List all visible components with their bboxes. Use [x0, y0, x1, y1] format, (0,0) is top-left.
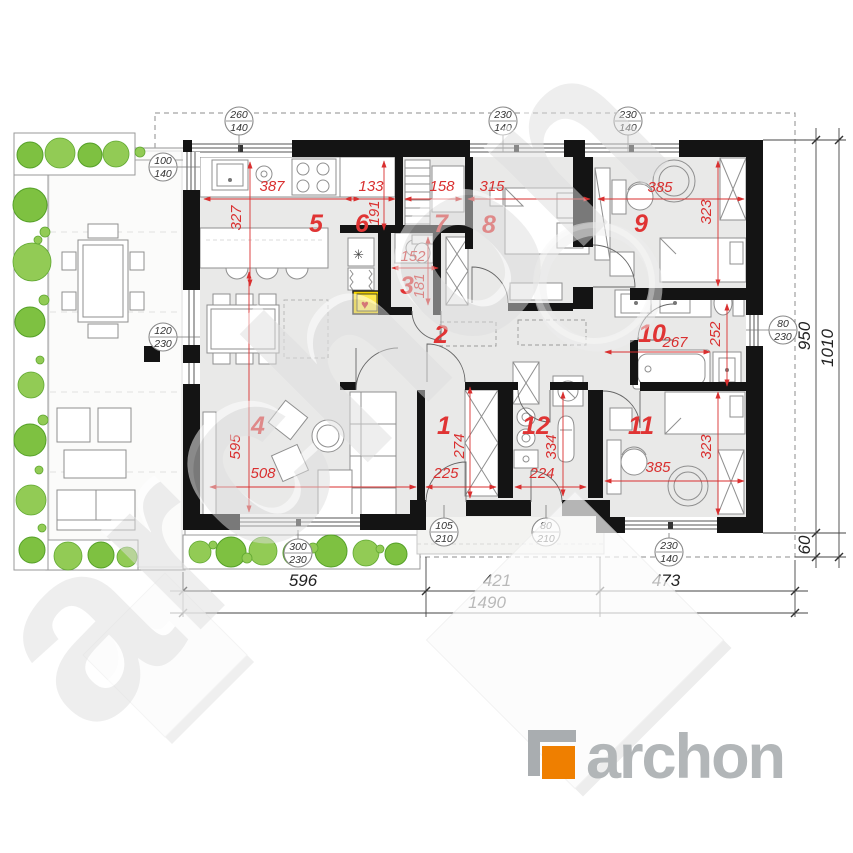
- svg-text:140: 140: [494, 122, 512, 134]
- dim-right-1010: 1010: [818, 329, 837, 367]
- dim-323-room9: 323: [698, 199, 715, 225]
- spec-circle-300-230: 300230: [284, 539, 312, 567]
- dim-right-60: 60: [795, 535, 814, 554]
- dim-bottom-473: 473: [652, 571, 681, 590]
- boiler: ♥: [353, 291, 381, 314]
- room-label-3: 3: [400, 272, 414, 300]
- dim-385-room9: 385: [647, 179, 673, 196]
- dim-133: 133: [358, 178, 384, 195]
- svg-text:230: 230: [773, 331, 792, 343]
- dim-327: 327: [228, 205, 245, 231]
- dim-bottom-596: 596: [289, 571, 318, 590]
- boiler-heart-icon: ♥: [361, 297, 369, 312]
- spec-circle-230-140-a: 230140: [489, 107, 517, 135]
- room-label-9: 9: [634, 210, 648, 238]
- room-label-1: 1: [437, 412, 451, 440]
- dim-387: 387: [259, 178, 285, 195]
- svg-text:210: 210: [434, 533, 453, 545]
- room-label-6: 6: [355, 210, 370, 238]
- room-label-2: 2: [433, 321, 448, 349]
- dim-225: 225: [432, 465, 459, 482]
- svg-text:140: 140: [230, 122, 248, 134]
- room-label-4: 4: [250, 412, 265, 440]
- dim-323-room11: 323: [698, 434, 715, 460]
- dim-152: 152: [400, 248, 426, 265]
- svg-text:140: 140: [154, 168, 172, 180]
- dim-274: 274: [451, 433, 468, 459]
- spec-circle-105-210: 105210: [430, 518, 458, 546]
- window-top-1: [192, 140, 292, 157]
- svg-text:230: 230: [288, 554, 307, 566]
- svg-text:230: 230: [493, 109, 512, 121]
- svg-text:120: 120: [154, 325, 172, 337]
- window-left: [183, 152, 200, 190]
- dim-595: 595: [227, 434, 244, 460]
- svg-text:210: 210: [536, 533, 555, 545]
- vent-symbol: ✳: [353, 247, 364, 262]
- spec-circle-230-140-b: 230140: [614, 107, 642, 135]
- window-top-2: [470, 140, 564, 157]
- svg-text:300: 300: [289, 541, 307, 553]
- spec-circle-260-140: 260140: [225, 107, 253, 135]
- floor-plan-page: **: [0, 0, 853, 853]
- dim-252: 252: [707, 321, 724, 348]
- svg-text:230: 230: [618, 109, 637, 121]
- floor-plan-svg: **: [0, 0, 853, 853]
- room-label-12: 12: [522, 412, 550, 440]
- logo-wordmark: archon: [586, 722, 784, 792]
- terrace-glass-door-2: [183, 363, 200, 384]
- svg-text:80: 80: [777, 318, 789, 330]
- dim-bottom-1490: 1490: [468, 593, 506, 612]
- dim-385-room11: 385: [645, 459, 671, 476]
- room-label-10: 10: [638, 320, 666, 348]
- svg-text:140: 140: [619, 122, 637, 134]
- spec-circle-80-230: 80230: [769, 316, 797, 344]
- spec-circle-230-140-c: 230140: [655, 538, 683, 566]
- spec-circle-100-140: 100140: [149, 153, 177, 181]
- window-right: [746, 315, 763, 346]
- svg-text:105: 105: [435, 520, 453, 532]
- window-top-3: [585, 140, 679, 157]
- room-label-11: 11: [628, 412, 654, 440]
- dim-bottom-421: 421: [483, 571, 511, 590]
- room-label-7: 7: [434, 210, 449, 238]
- svg-text:140: 140: [660, 553, 678, 565]
- room-label-8: 8: [482, 211, 496, 239]
- window-bottom-left: [240, 514, 360, 530]
- svg-text:80: 80: [540, 520, 552, 532]
- svg-text:230: 230: [153, 338, 172, 350]
- dim-158: 158: [429, 178, 455, 195]
- svg-text:260: 260: [229, 109, 248, 121]
- window-bottom-right: [625, 517, 717, 533]
- svg-text:230: 230: [659, 540, 678, 552]
- spec-circle-120-230: 120230: [149, 323, 177, 351]
- dim-315: 315: [479, 178, 505, 195]
- dim-508: 508: [250, 465, 276, 482]
- logo-bracket-vertical: [528, 730, 540, 776]
- archon-logo: archon: [528, 722, 784, 792]
- dim-right-950: 950: [795, 321, 814, 350]
- spec-circle-80-210: 80210: [532, 518, 560, 546]
- dim-224: 224: [528, 465, 554, 482]
- svg-text:100: 100: [154, 155, 172, 167]
- logo-orange-square-icon: [542, 746, 575, 779]
- room-label-5: 5: [309, 210, 324, 238]
